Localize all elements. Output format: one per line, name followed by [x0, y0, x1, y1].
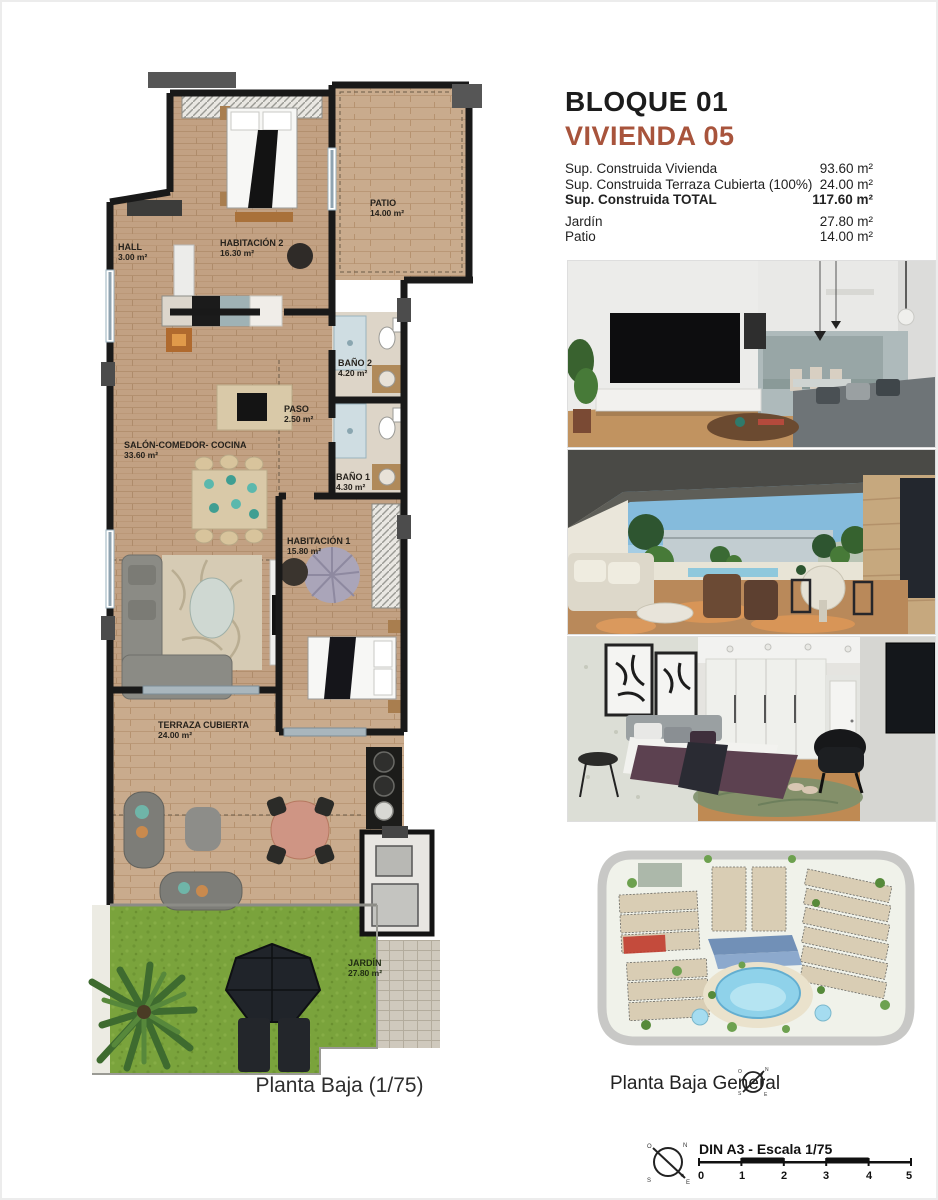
svg-text:S: S	[738, 1091, 742, 1097]
dining-set	[192, 455, 267, 545]
area-label: Sup. Construida Vivienda	[565, 161, 717, 177]
area-value: 27.80 m²	[820, 214, 873, 230]
compass-icon: N S O E	[736, 1064, 770, 1098]
area-label: Sup. Construida TOTAL	[565, 192, 717, 208]
svg-text:5: 5	[906, 1170, 912, 1182]
photo-terraza	[567, 449, 936, 635]
areas-row: Jardín 27.80 m²	[565, 214, 873, 230]
scale-label: DIN A3 - Escala 1/75	[699, 1141, 832, 1157]
area-value: 117.60 m²	[812, 192, 873, 208]
area-label: Jardín	[565, 214, 603, 230]
svg-text:E: E	[764, 1092, 768, 1098]
svg-text:O: O	[738, 1069, 742, 1075]
label-jardin: JARDÍN 27.80 m²	[348, 958, 384, 978]
area-value: 24.00 m²	[820, 177, 873, 193]
svg-text:N: N	[765, 1067, 769, 1073]
label-hall: HALL 3.00 m²	[118, 242, 147, 262]
scale-bar: 0 1 2 3 4 5	[697, 1157, 915, 1183]
area-label: Sup. Construida Terraza Cubierta (100%)	[565, 177, 812, 193]
highlighted-unit	[623, 935, 666, 954]
compass-icon-scale: O N S E	[645, 1138, 691, 1184]
utility-block	[362, 826, 432, 934]
svg-text:O: O	[647, 1144, 652, 1150]
unit-title: VIVIENDA 05	[565, 121, 735, 152]
site-plan	[580, 843, 924, 1065]
areas-row: Sup. Construida Terraza Cubierta (100%) …	[565, 177, 873, 193]
area-label: Patio	[565, 229, 596, 245]
svg-text:1: 1	[739, 1170, 745, 1182]
svg-text:3: 3	[823, 1170, 829, 1182]
photo-dormitorio	[567, 636, 936, 822]
svg-text:0: 0	[698, 1170, 704, 1182]
areas-row-total: Sup. Construida TOTAL 117.60 m²	[565, 192, 873, 208]
svg-text:S: S	[647, 1178, 651, 1184]
floor-plan-caption: Planta Baja (1/75)	[232, 1074, 447, 1098]
svg-text:4: 4	[866, 1170, 873, 1182]
photo-salon-comedor	[567, 260, 936, 448]
svg-text:E: E	[686, 1180, 690, 1184]
area-value: 93.60 m²	[820, 161, 873, 177]
areas-table: Sup. Construida Vivienda 93.60 m² Sup. C…	[565, 161, 873, 245]
plan-sheet: HALL 3.00 m² HABITACIÓN 2 16.30 m² PATIO…	[0, 0, 938, 1200]
block-title: BLOQUE 01	[565, 86, 728, 118]
svg-text:N: N	[683, 1143, 687, 1149]
areas-row: Patio 14.00 m²	[565, 229, 873, 245]
svg-text:2: 2	[781, 1170, 787, 1182]
areas-row: Sup. Construida Vivienda 93.60 m²	[565, 161, 873, 177]
area-value: 14.00 m²	[820, 229, 873, 245]
floor-plan: HALL 3.00 m² HABITACIÓN 2 16.30 m² PATIO…	[32, 60, 537, 1090]
label-paso: PASO 2.50 m²	[284, 404, 313, 424]
